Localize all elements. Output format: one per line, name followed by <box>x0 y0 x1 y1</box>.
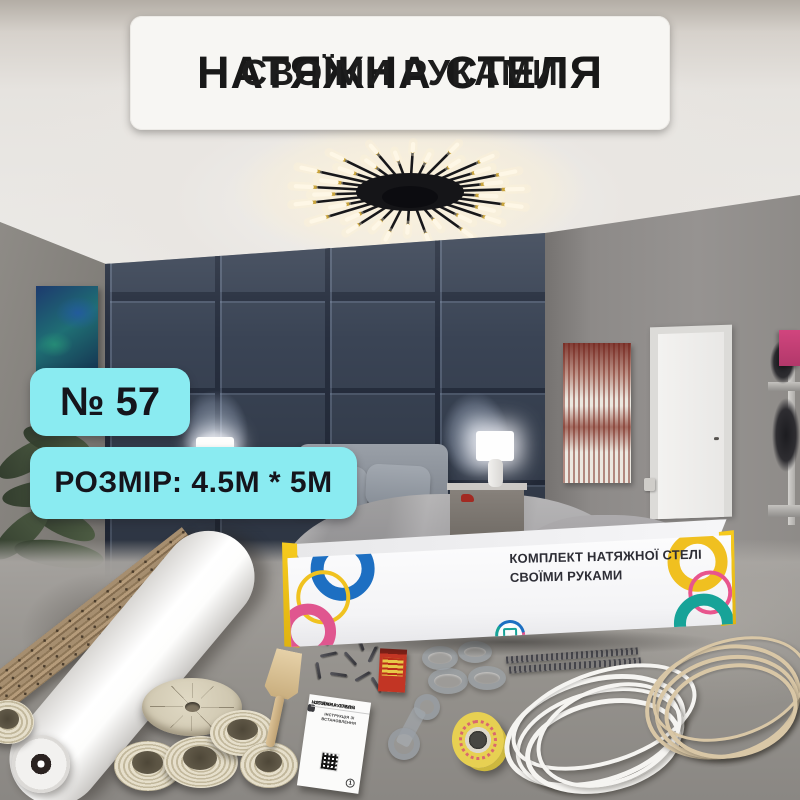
rack-shelf <box>768 505 800 517</box>
screw <box>316 662 322 679</box>
right-table-lamp-shade <box>476 431 514 461</box>
thermo-ring <box>468 666 506 690</box>
rack-items <box>772 398 800 472</box>
title-banner: НАТЯЖНА СТЕЛЯ СВОЇМИ РУКАМИ <box>130 16 670 130</box>
dowel-box-label <box>382 657 404 676</box>
box-teal-circle <box>673 593 734 654</box>
box-title-line2: СВОЇМИ РУКАМИ <box>510 566 623 587</box>
screw <box>354 671 370 682</box>
door-panel <box>658 332 724 519</box>
instruction-subtitle: ІНСТРУКЦІЯ ЗІ ВСТАНОВЛЕННЯ <box>309 705 369 727</box>
thermo-ring <box>428 668 468 694</box>
page-number: 1 <box>345 778 355 788</box>
spatula-handle <box>265 695 285 748</box>
product-photo: НАТЯЖНА СТЕЛЯ «СВОЇМИ РУКАМИ» ІНСТРУКЦІЯ… <box>0 0 800 800</box>
door-handle <box>714 437 719 440</box>
size-badge: РОЗМІР: 4.5М * 5М <box>30 447 357 519</box>
abstract-painting <box>36 286 98 376</box>
harpoon-tool-ring <box>388 728 420 760</box>
item-number-badge: № 57 <box>30 368 190 436</box>
screw <box>330 672 347 677</box>
nightstand-decor <box>461 494 474 502</box>
film-roll-end <box>12 735 70 793</box>
nightstand-top <box>447 483 527 490</box>
light-switch <box>644 478 655 491</box>
banner-line2: СВОЇМИ РУКАМИ <box>241 53 559 93</box>
pink-box-on-rack <box>779 330 800 366</box>
dowel-box <box>378 648 407 692</box>
qr-code <box>320 753 338 771</box>
right-table-lamp-base <box>488 459 503 487</box>
textile-wall-art <box>563 343 631 483</box>
product-box: КОМПЛЕКТ НАТЯЖНОЇ СТЕЛІ СВОЇМИ РУКАМИ <box>282 513 741 655</box>
door <box>650 325 732 520</box>
brand-logo-square <box>503 628 517 642</box>
instruction-sheet: НАТЯЖНА СТЕЛЯ «СВОЇМИ РУКАМИ» ІНСТРУКЦІЯ… <box>297 694 371 794</box>
